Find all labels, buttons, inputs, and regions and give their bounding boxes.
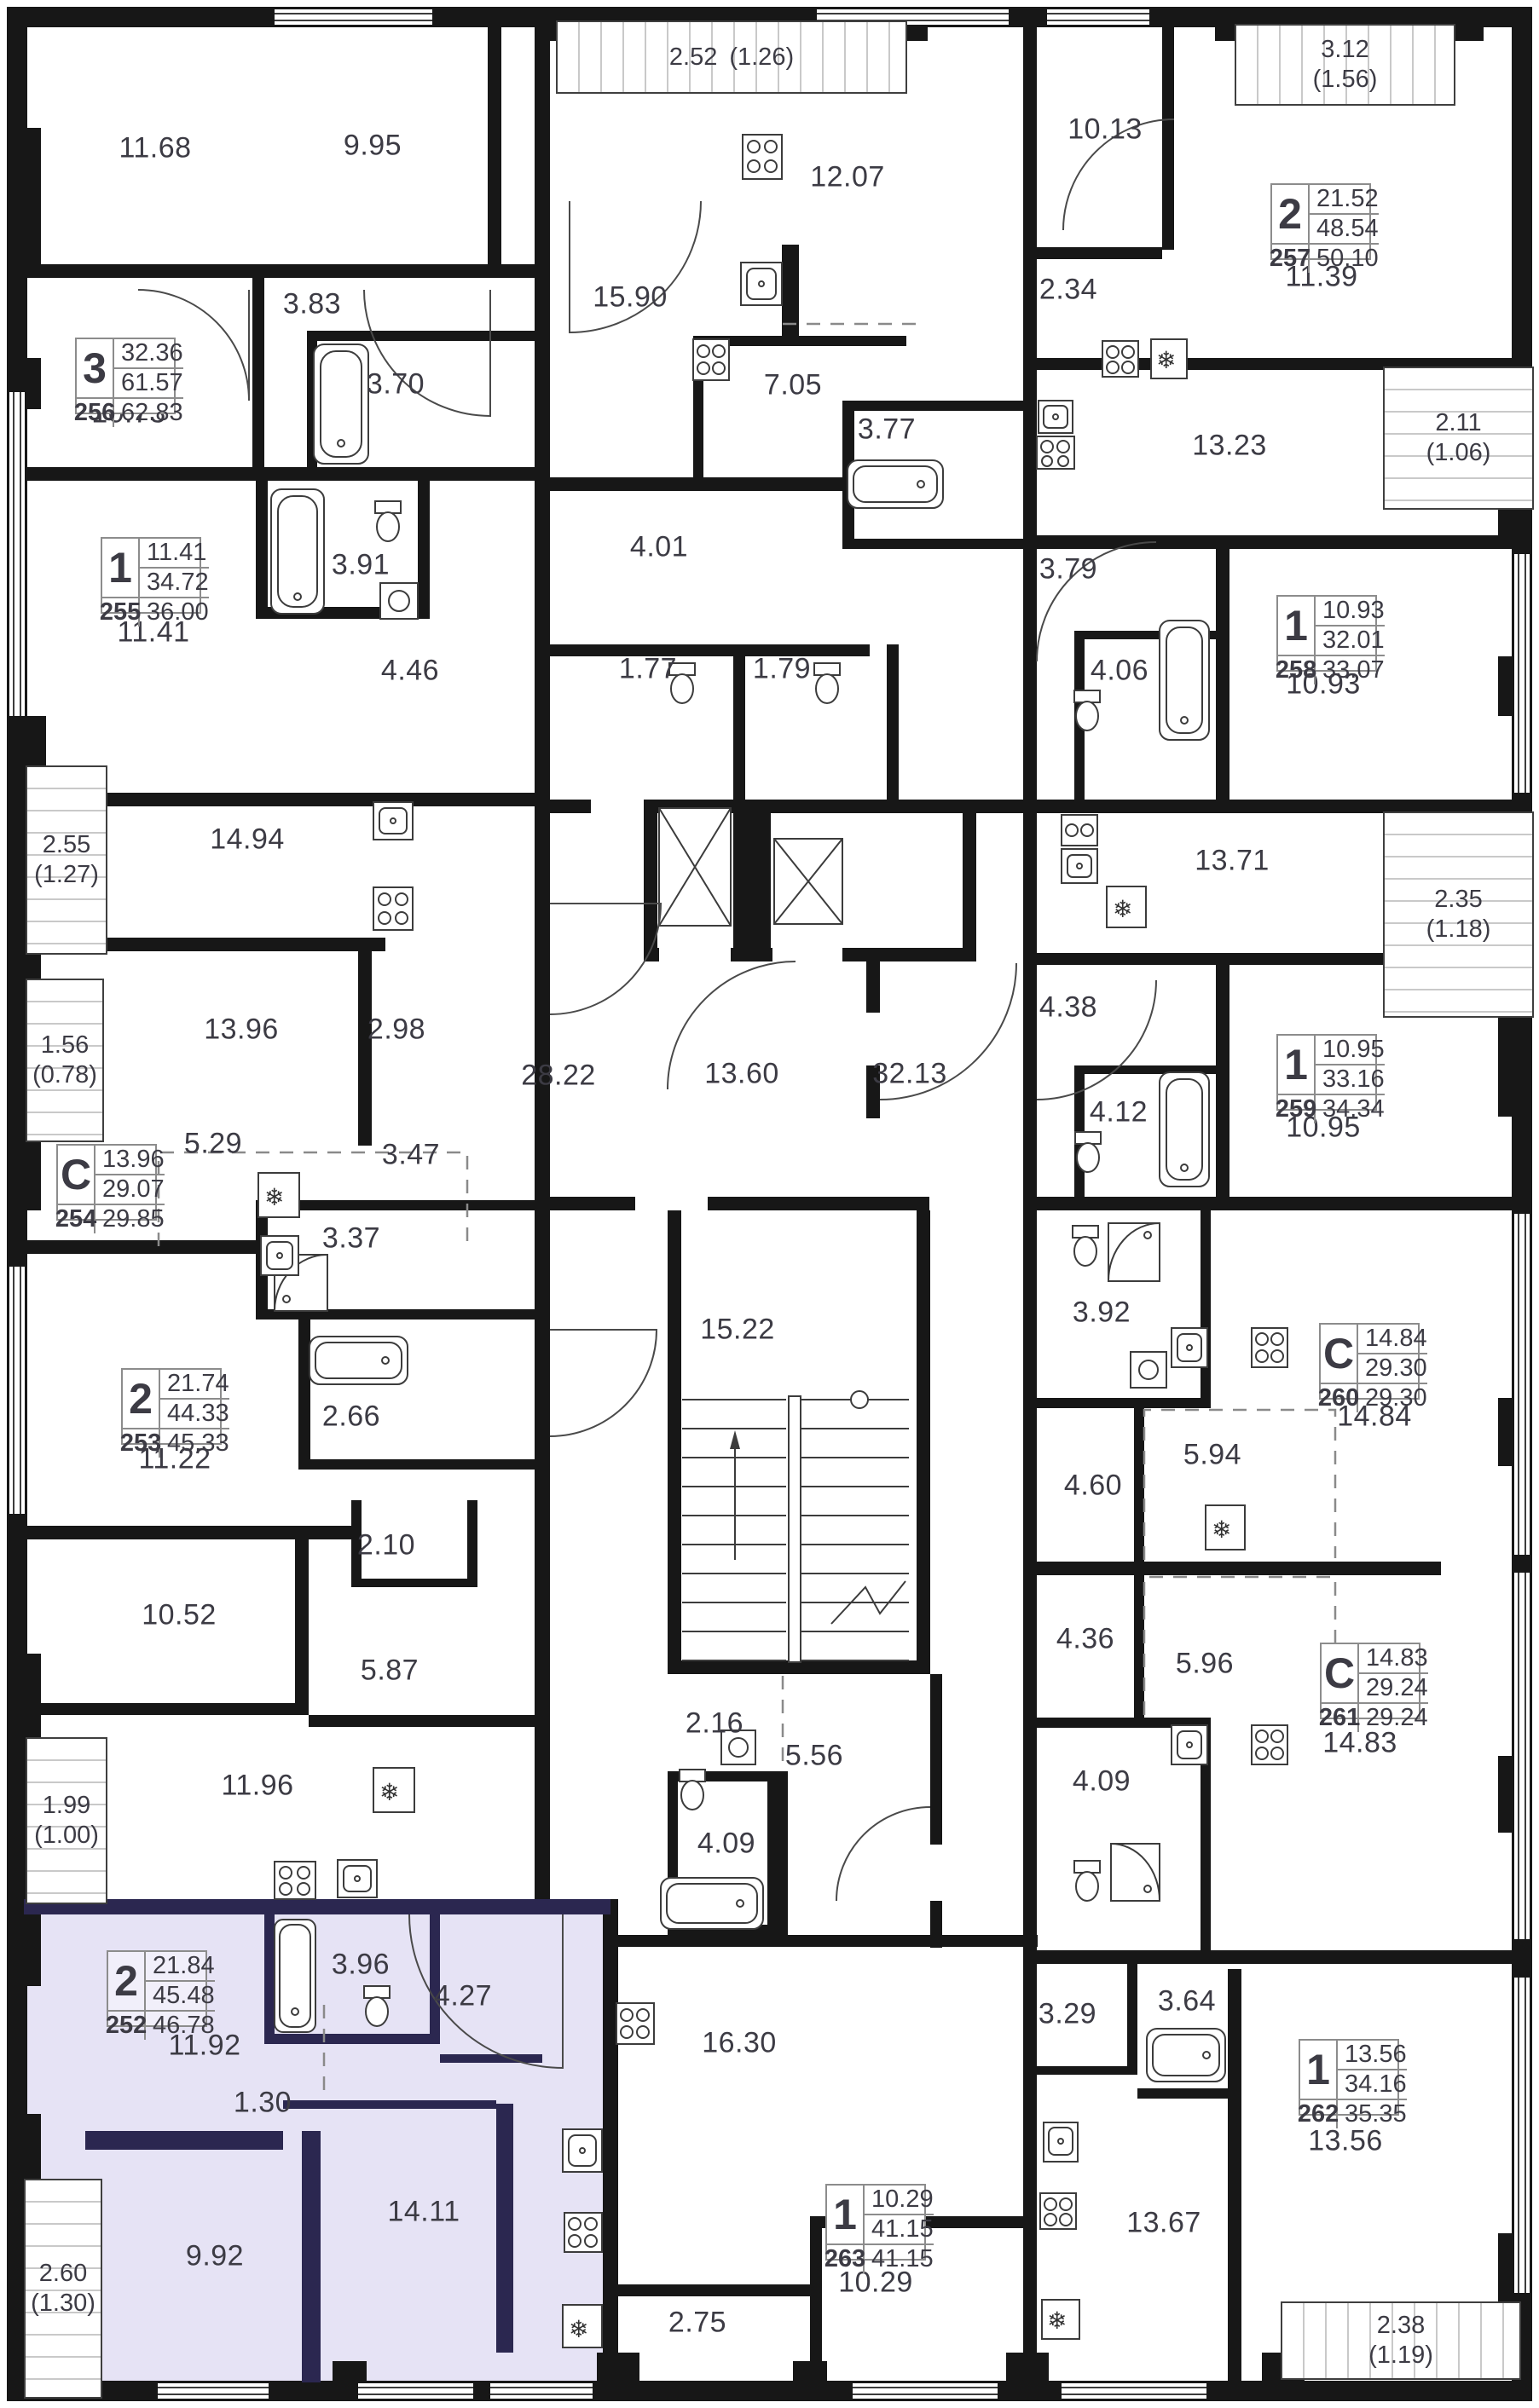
room-area-label: 14.11 — [387, 2196, 460, 2229]
svg-text:❄: ❄ — [569, 2315, 588, 2343]
apartment-card-261[interactable]: С14.8329.2426129.24 — [1320, 1643, 1420, 1719]
svg-text:❄: ❄ — [379, 1778, 399, 1806]
room-area-label: 4.38 — [1039, 991, 1097, 1025]
room-area-label: 14.94 — [210, 823, 285, 857]
room-area-label: 7.05 — [764, 369, 822, 402]
room-area-label: 3.70 — [367, 368, 425, 401]
room-area-label: 13.60 — [704, 1058, 779, 1091]
svg-text:❄: ❄ — [1212, 1516, 1231, 1544]
room-area-label: 13.71 — [1195, 845, 1270, 878]
room-area-label: 5.29 — [184, 1128, 242, 1161]
room-area-label: 3.96 — [332, 1949, 390, 1982]
room-area-label: 3.37 — [322, 1222, 380, 1256]
room-area-label: 13.96 — [204, 1013, 279, 1047]
room-area-label: 2.75 — [668, 2307, 726, 2340]
apartment-card-258[interactable]: 110.9332.0125833.07 — [1276, 595, 1377, 672]
room-area-label: 3.83 — [283, 288, 341, 321]
balcony-2-38: 2.38(1.19) — [1281, 2301, 1521, 2380]
room-area-label: 16.30 — [702, 2027, 777, 2060]
room-area-label: 28.22 — [521, 1060, 596, 1093]
room-area-label: 3.92 — [1073, 1296, 1131, 1330]
room-area-label: 1.30 — [234, 2087, 292, 2120]
balcony-256: 2.52(1.26) — [556, 20, 907, 94]
room-area-label: 1.77 — [619, 653, 677, 686]
room-area-label: 13.67 — [1126, 2207, 1201, 2240]
room-area-label: 4.36 — [1056, 1623, 1114, 1656]
balcony-2-60: 2.60(1.30) — [24, 2179, 102, 2399]
room-area-label: 11.68 — [119, 132, 191, 165]
room-area-label: 13.23 — [1192, 430, 1267, 463]
room-area-label: 2.16 — [686, 1707, 743, 1741]
svg-text:❄: ❄ — [1113, 895, 1132, 923]
svg-text:❄: ❄ — [1156, 346, 1176, 374]
room-area-label: 4.06 — [1091, 655, 1148, 688]
room-area-label: 5.56 — [785, 1740, 843, 1773]
room-area-label: 2.10 — [357, 1529, 415, 1562]
room-area-label: 3.64 — [1158, 1985, 1216, 2018]
room-area-label: 9.95 — [344, 130, 402, 163]
apartment-card-259[interactable]: 110.9533.1625934.34 — [1276, 1034, 1377, 1111]
room-area-label: 2.34 — [1039, 274, 1097, 307]
balcony-1-99: 1.99(1.00) — [26, 1737, 107, 1904]
staircase-icon — [682, 1391, 909, 1662]
room-area-label: 15.90 — [593, 281, 668, 315]
room-area-label: 10.52 — [142, 1599, 217, 1632]
room-area-label: 3.47 — [382, 1139, 440, 1172]
room-area-label: 32.13 — [872, 1058, 947, 1091]
room-area-label: 10.13 — [1067, 113, 1143, 147]
balcony-1-56: 1.56(0.78) — [26, 979, 104, 1142]
apartment-card-252[interactable]: 221.8445.4825246.78 — [107, 1950, 207, 2027]
room-area-label: 15.22 — [700, 1314, 775, 1347]
room-area-label: 4.09 — [1073, 1765, 1131, 1799]
room-area-label: 4.27 — [434, 1980, 492, 2013]
svg-text:❄: ❄ — [264, 1183, 284, 1211]
room-area-label: 3.29 — [1039, 1998, 1096, 2031]
room-area-label: 4.09 — [697, 1828, 755, 1861]
apartment-card-256[interactable]: 332.3661.5725662.83 — [75, 338, 176, 414]
room-area-label: 5.96 — [1176, 1648, 1234, 1681]
balcony-2-55: 2.55(1.27) — [26, 765, 107, 955]
room-area-label: 5.94 — [1183, 1439, 1241, 1472]
room-area-label: 4.46 — [381, 655, 439, 688]
room-area-label: 4.12 — [1090, 1096, 1148, 1129]
balcony-2-11: 2.11(1.06) — [1383, 367, 1534, 510]
apartment-card-257[interactable]: 221.5248.5425750.10 — [1270, 183, 1371, 260]
apartment-card-255[interactable]: 111.4134.7225536.00 — [101, 537, 201, 614]
svg-text:❄: ❄ — [1047, 2307, 1067, 2335]
room-area-label: 3.77 — [858, 413, 916, 447]
room-area-label: 2.98 — [367, 1013, 425, 1047]
apartment-card-262[interactable]: 113.5634.1626235.35 — [1299, 2039, 1399, 2116]
room-area-label: 3.79 — [1039, 553, 1097, 586]
apartment-card-253[interactable]: 221.7444.3325345.33 — [121, 1368, 222, 1445]
apartment-card-260[interactable]: С14.8429.3026029.30 — [1319, 1323, 1420, 1400]
apartment-card-254[interactable]: С13.9629.0725429.85 — [56, 1144, 157, 1221]
room-area-label: 4.60 — [1064, 1470, 1122, 1503]
room-area-label: 1.79 — [753, 653, 811, 686]
room-area-label: 13.56 — [1308, 2125, 1383, 2158]
room-area-label: 2.66 — [322, 1400, 380, 1434]
room-area-label: 12.07 — [810, 161, 885, 194]
toilet-icon — [364, 501, 1101, 2026]
apartment-card-263[interactable]: 110.2941.1526341.15 — [825, 2184, 926, 2261]
room-area-label: 3.91 — [332, 549, 390, 582]
room-area-label: 4.01 — [630, 531, 688, 564]
room-area-label: 11.96 — [221, 1770, 293, 1803]
washing-machine-icon — [380, 583, 1166, 1764]
floor-plan: ❄ ❄ ❄ ❄ ❄ ❄ ❄ — [0, 0, 1539, 2408]
balcony-2-35: 2.35(1.18) — [1383, 811, 1534, 1018]
room-area-label: 9.92 — [186, 2240, 244, 2273]
room-area-label: 5.87 — [361, 1654, 419, 1688]
balcony-257: 3.12(1.56) — [1235, 24, 1455, 106]
